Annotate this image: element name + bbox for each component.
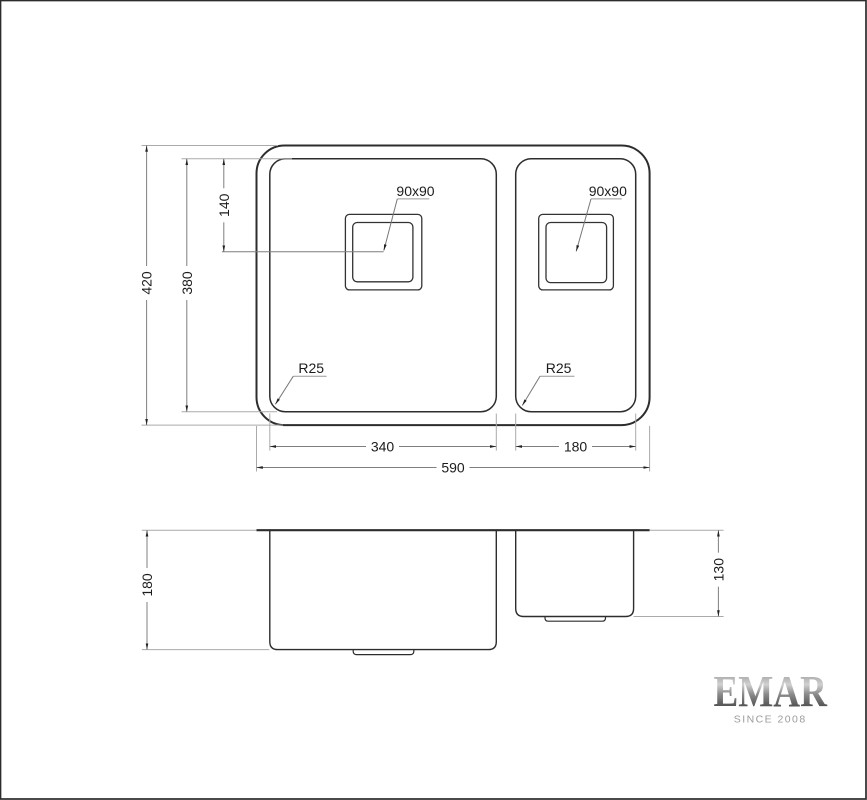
svg-text:140: 140	[216, 193, 232, 217]
svg-text:90x90: 90x90	[589, 183, 627, 199]
svg-text:90x90: 90x90	[396, 183, 434, 199]
svg-text:R25: R25	[546, 360, 572, 376]
svg-text:R25: R25	[298, 360, 324, 376]
svg-text:340: 340	[371, 439, 395, 455]
svg-text:590: 590	[441, 460, 465, 476]
svg-text:EMAR: EMAR	[713, 667, 828, 716]
svg-text:SINCE 2008: SINCE 2008	[734, 714, 807, 726]
svg-text:420: 420	[139, 271, 155, 295]
svg-text:180: 180	[139, 573, 155, 597]
svg-text:180: 180	[564, 439, 588, 455]
svg-text:130: 130	[710, 558, 726, 582]
svg-text:380: 380	[179, 271, 195, 295]
